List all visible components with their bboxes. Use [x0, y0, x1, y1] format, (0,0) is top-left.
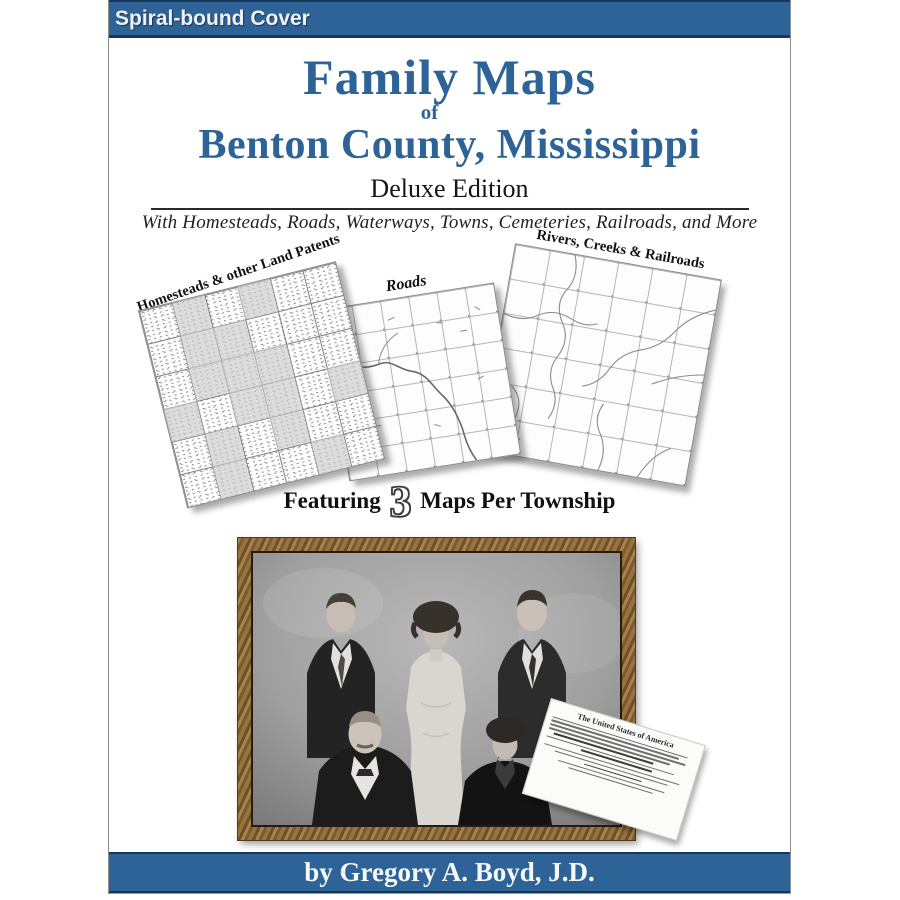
- shaded-section-cell: [237, 279, 278, 320]
- format-banner-label: Spiral-bound Cover: [115, 7, 310, 30]
- edition-label: Deluxe Edition: [109, 174, 790, 204]
- series-title: Family Maps: [109, 52, 790, 102]
- cover-page: Spiral-bound Cover Family Maps of Benton…: [108, 0, 791, 894]
- featuring-suffix: Maps Per Township: [420, 488, 615, 513]
- shaded-section-cell: [311, 434, 352, 475]
- title-connector: of: [69, 103, 790, 122]
- byline-bar: by Gregory A. Boyd, J.D.: [109, 852, 790, 893]
- featuring-count: 3: [386, 477, 414, 526]
- shaded-section-cell: [327, 360, 368, 401]
- figure-standing-woman-center: [406, 601, 466, 825]
- featuring-prefix: Featuring: [284, 488, 381, 513]
- byline-text: by Gregory A. Boyd, J.D.: [304, 857, 595, 887]
- shaded-section-cell: [270, 409, 311, 450]
- book-cover-image: Spiral-bound Cover Family Maps of Benton…: [0, 0, 900, 900]
- format-banner: Spiral-bound Cover: [109, 0, 790, 38]
- shaded-section-cell: [164, 401, 205, 442]
- featuring-line: Featuring 3 Maps Per Township: [109, 476, 790, 527]
- county-title: Benton County, Mississippi: [109, 124, 790, 166]
- tagline: With Homesteads, Roads, Waterways, Towns…: [109, 212, 790, 234]
- title-divider: [151, 208, 749, 210]
- title-block: Family Maps of Benton County, Mississipp…: [109, 52, 790, 234]
